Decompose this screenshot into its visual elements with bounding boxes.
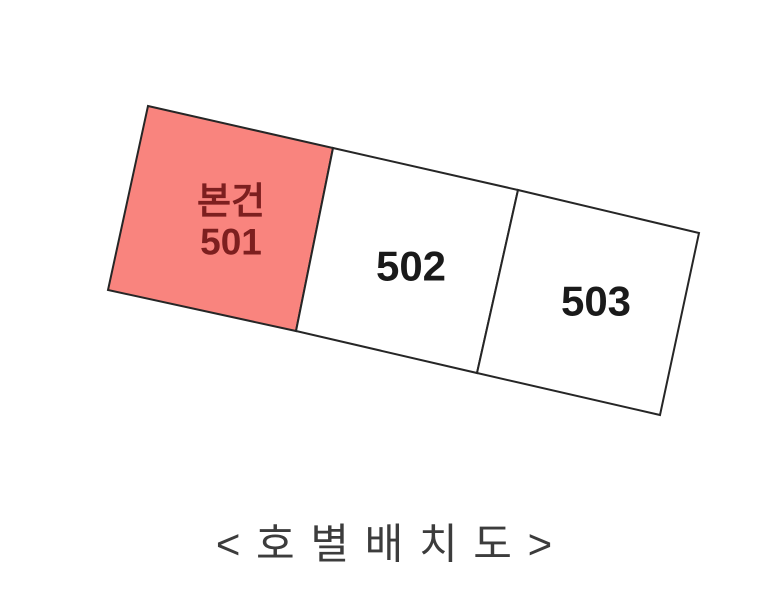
diagram-caption: < 호 별 배 치 도 > (216, 511, 554, 572)
unit-501-name: 본건 (197, 181, 265, 222)
unit-502-label: 502 (376, 242, 446, 289)
unit-layout-diagram: 본건 501 502 503 < 호 별 배 치 도 > (0, 0, 781, 600)
unit-501-number: 501 (197, 222, 265, 263)
unit-501-label: 본건 501 (197, 181, 265, 264)
unit-503-label: 503 (561, 277, 631, 324)
